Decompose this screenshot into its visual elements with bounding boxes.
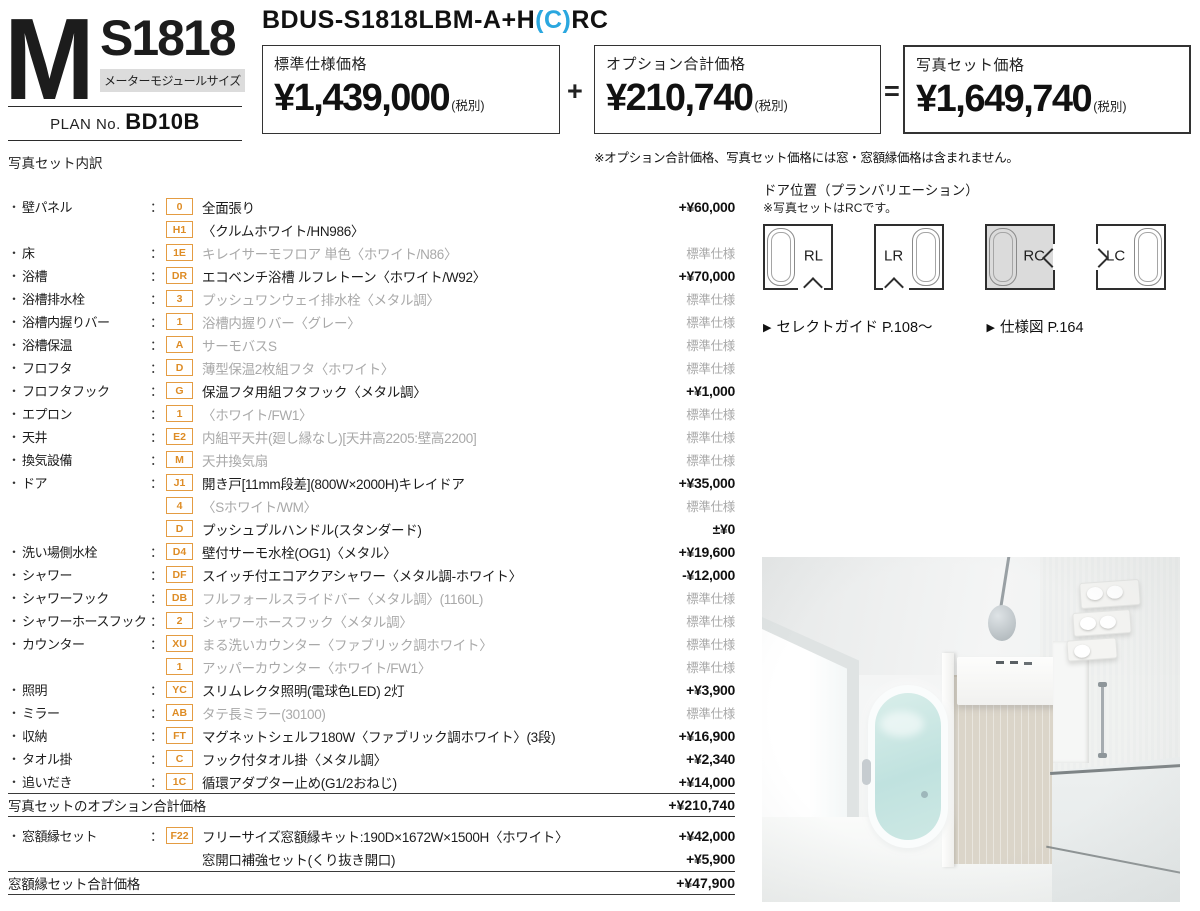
row-code-badge: 1C xyxy=(166,773,193,790)
logo-m: M xyxy=(4,6,89,114)
row-category: ドア xyxy=(22,473,150,492)
plan-number-label: PLAN No. xyxy=(50,116,121,133)
option-total-price-box: オプション合計価格 ¥210,740 (税別) xyxy=(594,45,881,134)
breakdown-row: ・フロフタフック：G保温フタ用組フタフック〈メタル調〉+¥1,000 xyxy=(8,379,735,402)
breakdown-row: ・照明：YCスリムレクタ照明(電球色LED) 2灯+¥3,900 xyxy=(8,678,735,701)
row-colon: ： xyxy=(150,826,166,845)
door-chevron-icon xyxy=(884,277,904,297)
row-bullet: ・ xyxy=(8,290,22,307)
price-amount-row: ¥1,439,000 (税別) xyxy=(274,77,548,120)
row-price: +¥70,000 xyxy=(635,268,735,284)
row-bullet: ・ xyxy=(8,566,22,583)
row-description: アッパーカウンター〈ホワイト/FW1〉 xyxy=(202,657,635,677)
row-price: +¥1,000 xyxy=(635,383,735,399)
plan-tub-inner xyxy=(771,232,791,282)
breakdown-row: ・換気設備：M天井換気扇標準仕様 xyxy=(8,448,735,471)
window-total-row: 窓額縁セット合計価格 +¥47,900 xyxy=(8,871,735,895)
row-code-badge: M xyxy=(166,451,193,468)
row-price: 標準仕様 xyxy=(635,611,735,630)
row-price: 標準仕様 xyxy=(635,450,735,469)
breakdown-row: ・タオル掛：Cフック付タオル掛〈メタル調〉+¥2,340 xyxy=(8,747,735,770)
row-price: +¥35,000 xyxy=(635,475,735,491)
breakdown-row: ・エプロン：1〈ホワイト/FW1〉標準仕様 xyxy=(8,402,735,425)
row-colon: ： xyxy=(150,749,166,768)
plan-tub-icon xyxy=(912,228,940,286)
row-code-badge xyxy=(166,850,193,867)
row-price: 標準仕様 xyxy=(635,243,735,262)
price-box-label: 標準仕様価格 xyxy=(274,53,548,74)
product-code: BDUS-S1818LBM-A+H(C)RC xyxy=(262,6,608,35)
row-colon: ： xyxy=(150,381,166,400)
breakdown-row: ・浴槽：DRエコベンチ浴槽 ルフレトーン〈ホワイト/W92〉+¥70,000 xyxy=(8,264,735,287)
row-category: 照明 xyxy=(22,680,150,699)
spec-drawing-text: 仕様図 P.164 xyxy=(1000,320,1084,336)
breakdown-row: ・シャワー：DFスイッチ付エコアクアシャワー〈メタル調-ホワイト〉-¥12,00… xyxy=(8,563,735,586)
door-plan-lr: LR xyxy=(874,224,944,290)
row-description: 循環アダプター止め(G1/2おねじ) xyxy=(202,772,635,792)
options-total-price: +¥210,740 xyxy=(668,797,735,813)
breakdown-row: ・ミラー：ABタテ長ミラー(30100)標準仕様 xyxy=(8,701,735,724)
window-total-label: 窓額縁セット合計価格 xyxy=(8,873,140,893)
row-bullet: ・ xyxy=(8,750,22,767)
triangle-icon: ▶ xyxy=(763,322,771,334)
plan-tub-icon xyxy=(1134,228,1162,286)
row-bullet: ・ xyxy=(8,543,22,560)
row-colon: ： xyxy=(150,197,166,216)
row-description: プッシュワンウェイ排水栓〈メタル調〉 xyxy=(202,289,635,309)
row-price: +¥42,000 xyxy=(635,828,735,844)
row-price: 標準仕様 xyxy=(635,289,735,308)
breakdown-row: ・浴槽内握りバー：1浴槽内握りバー〈グレー〉標準仕様 xyxy=(8,310,735,333)
plan-tub-icon xyxy=(989,228,1017,286)
row-code-badge: 0 xyxy=(166,198,193,215)
plan-label: RL xyxy=(804,248,823,265)
window-frame-rows: ・窓額縁セット：F22フリーサイズ窓額縁キット:190D×1672W×1500H… xyxy=(8,824,735,870)
row-colon: ： xyxy=(150,611,166,630)
price-amount: ¥1,649,740 xyxy=(916,78,1091,121)
row-bullet: ・ xyxy=(8,198,22,215)
breakdown-title: 写真セット内訳 xyxy=(8,152,103,172)
breakdown-row: ・壁パネル：0全面張り+¥60,000 xyxy=(8,195,735,218)
row-bullet: ・ xyxy=(8,359,22,376)
row-colon: ： xyxy=(150,680,166,699)
row-description: プッシュプルハンドル(スタンダード) xyxy=(202,519,635,539)
price-tax-note: (税別) xyxy=(451,95,484,114)
logo-block: S1818 メーターモジュールサイズ xyxy=(100,12,246,92)
door-plan-rc: RC xyxy=(985,224,1055,290)
row-code-badge: G xyxy=(166,382,193,399)
row-category: シャワーフック xyxy=(22,588,150,607)
row-bullet: ・ xyxy=(8,773,22,790)
row-code-badge: D xyxy=(166,520,193,537)
photo-vignette xyxy=(762,557,1180,902)
breakdown-row: ・追いだき：1C循環アダプター止め(G1/2おねじ)+¥14,000 xyxy=(8,770,735,793)
row-bullet: ・ xyxy=(8,635,22,652)
row-category: 収納 xyxy=(22,726,150,745)
row-code-badge: 1 xyxy=(166,313,193,330)
row-code-badge: D xyxy=(166,359,193,376)
row-colon: ： xyxy=(150,772,166,791)
row-price: +¥14,000 xyxy=(635,774,735,790)
row-bullet: ・ xyxy=(8,474,22,491)
row-description: 天井換気扇 xyxy=(202,450,635,470)
row-colon: ： xyxy=(150,726,166,745)
row-colon: ： xyxy=(150,473,166,492)
bathroom-photo xyxy=(762,557,1180,902)
row-price: +¥5,900 xyxy=(635,851,735,867)
door-plan-rl: RL xyxy=(763,224,833,290)
row-colon: ： xyxy=(150,565,166,584)
logo-size-badge: メーターモジュールサイズ xyxy=(100,69,245,92)
options-total-label: 写真セットのオプション合計価格 xyxy=(8,795,206,815)
row-description: 保温フタ用組フタフック〈メタル調〉 xyxy=(202,381,635,401)
breakdown-row: ・天井：E2内組平天井(廻し縁なし)[天井高2205:壁高2200]標準仕様 xyxy=(8,425,735,448)
row-bullet: ・ xyxy=(8,428,22,445)
row-code-badge: 1 xyxy=(166,658,193,675)
row-price: 標準仕様 xyxy=(635,588,735,607)
row-price: +¥16,900 xyxy=(635,728,735,744)
door-chevron-icon xyxy=(803,277,823,297)
row-code-badge: DR xyxy=(166,267,193,284)
row-colon: ： xyxy=(150,266,166,285)
triangle-icon: ▶ xyxy=(987,322,995,334)
row-colon: ： xyxy=(150,312,166,331)
breakdown-row: ・床：1Eキレイサーモフロア 単色〈ホワイト/N86〉標準仕様 xyxy=(8,241,735,264)
plan-tub-icon xyxy=(767,228,795,286)
price-exclusion-note: ※オプション合計価格、写真セット価格には窓・窓額縁価格は含まれません。 xyxy=(594,147,1019,166)
row-colon: ： xyxy=(150,404,166,423)
row-bullet: ・ xyxy=(8,405,22,422)
row-description: 〈クルムホワイト/HN986〉 xyxy=(202,220,635,240)
plan-tub-inner xyxy=(1138,232,1158,282)
row-category: 換気設備 xyxy=(22,450,150,469)
plan-label: RC xyxy=(1023,248,1045,265)
row-bullet: ・ xyxy=(8,244,22,261)
row-category: ミラー xyxy=(22,703,150,722)
row-price: 標準仕様 xyxy=(635,358,735,377)
catalog-page: M S1818 メーターモジュールサイズ PLAN No. BD10B 写真セッ… xyxy=(0,0,1200,911)
divider xyxy=(8,106,242,107)
row-price: +¥19,600 xyxy=(635,544,735,560)
door-plan-diagrams: RLLRRCLC xyxy=(763,224,1166,290)
row-code-badge: YC xyxy=(166,681,193,698)
price-amount: ¥210,740 xyxy=(606,77,753,120)
row-colon: ： xyxy=(150,588,166,607)
row-code-badge: J1 xyxy=(166,474,193,491)
row-price: 標準仕様 xyxy=(635,335,735,354)
row-description: 開き戸[11mm段差](800W×2000H)キレイドア xyxy=(202,473,635,493)
row-category: 浴槽内握りバー xyxy=(22,312,150,331)
breakdown-row: ・ドア：J1開き戸[11mm段差](800W×2000H)キレイドア+¥35,0… xyxy=(8,471,735,494)
price-tax-note: (税別) xyxy=(755,95,788,114)
row-code-badge: DF xyxy=(166,566,193,583)
door-plan-lc: LC xyxy=(1096,224,1166,290)
row-description: フック付タオル掛〈メタル調〉 xyxy=(202,749,635,769)
divider xyxy=(8,140,242,141)
breakdown-row: 1アッパーカウンター〈ホワイト/FW1〉標準仕様 xyxy=(8,655,735,678)
row-price: ±¥0 xyxy=(635,521,735,537)
plan-number-value: BD10B xyxy=(125,109,200,134)
row-price: 標準仕様 xyxy=(635,312,735,331)
row-code-badge: H1 xyxy=(166,221,193,238)
row-bullet: ・ xyxy=(8,267,22,284)
row-colon: ： xyxy=(150,542,166,561)
row-code-badge: AB xyxy=(166,704,193,721)
row-code-badge: F22 xyxy=(166,827,193,844)
row-bullet: ・ xyxy=(8,382,22,399)
row-category: フロフタフック xyxy=(22,381,150,400)
row-code-badge: E2 xyxy=(166,428,193,445)
row-description: 浴槽内握りバー〈グレー〉 xyxy=(202,312,635,332)
product-code-highlight: (C) xyxy=(535,6,571,34)
product-code-post: RC xyxy=(571,6,608,34)
row-code-badge: DB xyxy=(166,589,193,606)
row-price: +¥60,000 xyxy=(635,199,735,215)
spec-drawing-link: ▶仕様図 P.164 xyxy=(987,316,1084,337)
breakdown-row: 4〈Sホワイト/WM〉標準仕様 xyxy=(8,494,735,517)
row-category: カウンター xyxy=(22,634,150,653)
row-colon: ： xyxy=(150,289,166,308)
breakdown-row: ・窓額縁セット：F22フリーサイズ窓額縁キット:190D×1672W×1500H… xyxy=(8,824,735,847)
reference-links: ▶セレクトガイド P.108～ ▶仕様図 P.164 xyxy=(763,316,1084,337)
row-bullet: ・ xyxy=(8,451,22,468)
breakdown-row: ・シャワーホースフック：2シャワーホースフック〈メタル調〉標準仕様 xyxy=(8,609,735,632)
row-category: シャワー xyxy=(22,565,150,584)
row-code-badge: 1 xyxy=(166,405,193,422)
price-amount-row: ¥210,740 (税別) xyxy=(606,77,869,120)
row-price: +¥2,340 xyxy=(635,751,735,767)
breakdown-row: Dプッシュプルハンドル(スタンダード)±¥0 xyxy=(8,517,735,540)
row-description: 〈ホワイト/FW1〉 xyxy=(202,404,635,424)
photo-set-price-box: 写真セット価格 ¥1,649,740 (税別) xyxy=(903,45,1191,134)
row-category: 窓額縁セット xyxy=(22,826,150,845)
row-price: -¥12,000 xyxy=(635,567,735,583)
row-description: 窓開口補強セット(くり抜き開口) xyxy=(202,849,635,869)
breakdown-row: ・シャワーフック：DBフルフォールスライドバー〈メタル調〉(1160L)標準仕様 xyxy=(8,586,735,609)
logo-model: S1818 xyxy=(100,12,246,65)
row-colon: ： xyxy=(150,427,166,446)
row-code-badge: FT xyxy=(166,727,193,744)
breakdown-row: ・浴槽保温：AサーモバスS標準仕様 xyxy=(8,333,735,356)
plus-operator: + xyxy=(567,76,583,107)
row-code-badge: XU xyxy=(166,635,193,652)
row-description: マグネットシェルフ180W〈ファブリック調ホワイト〉(3段) xyxy=(202,726,635,746)
row-price: 標準仕様 xyxy=(635,703,735,722)
standard-price-box: 標準仕様価格 ¥1,439,000 (税別) xyxy=(262,45,560,134)
row-code-badge: 2 xyxy=(166,612,193,629)
plan-tub-inner xyxy=(916,232,936,282)
row-description: キレイサーモフロア 単色〈ホワイト/N86〉 xyxy=(202,243,635,263)
row-colon: ： xyxy=(150,358,166,377)
row-colon: ： xyxy=(150,450,166,469)
row-bullet: ・ xyxy=(8,704,22,721)
breakdown-row: 窓開口補強セット(くり抜き開口)+¥5,900 xyxy=(8,847,735,870)
row-code-badge: 4 xyxy=(166,497,193,514)
breakdown-row: ・浴槽排水栓：3プッシュワンウェイ排水栓〈メタル調〉標準仕様 xyxy=(8,287,735,310)
row-category: タオル掛 xyxy=(22,749,150,768)
row-bullet: ・ xyxy=(8,681,22,698)
row-price: 標準仕様 xyxy=(635,657,735,676)
row-description: フルフォールスライドバー〈メタル調〉(1160L) xyxy=(202,588,635,608)
plan-label: LR xyxy=(884,248,903,265)
row-code-badge: 1E xyxy=(166,244,193,261)
row-code-badge: 3 xyxy=(166,290,193,307)
breakdown-row: ・フロフタ：D薄型保温2枚組フタ〈ホワイト〉標準仕様 xyxy=(8,356,735,379)
row-code-badge: D4 xyxy=(166,543,193,560)
row-description: 壁付サーモ水栓(OG1)〈メタル〉 xyxy=(202,542,635,562)
plan-tub-inner xyxy=(993,232,1013,282)
equals-operator: = xyxy=(884,76,900,107)
row-price: 標準仕様 xyxy=(635,496,735,515)
row-price: 標準仕様 xyxy=(635,427,735,446)
plan-label: LC xyxy=(1106,248,1125,265)
row-code-badge: A xyxy=(166,336,193,353)
row-colon: ： xyxy=(150,703,166,722)
row-description: スイッチ付エコアクアシャワー〈メタル調-ホワイト〉 xyxy=(202,565,635,585)
breakdown-list: ・壁パネル：0全面張り+¥60,000H1〈クルムホワイト/HN986〉・床：1… xyxy=(8,195,735,793)
door-position-title: ドア位置（プランバリエーション） xyxy=(763,179,979,199)
row-category: 追いだき xyxy=(22,772,150,791)
row-description: エコベンチ浴槽 ルフレトーン〈ホワイト/W92〉 xyxy=(202,266,635,286)
row-code-badge: C xyxy=(166,750,193,767)
row-bullet: ・ xyxy=(8,727,22,744)
price-amount: ¥1,439,000 xyxy=(274,77,449,120)
row-category: 浴槽 xyxy=(22,266,150,285)
row-description: フリーサイズ窓額縁キット:190D×1672W×1500H〈ホワイト〉 xyxy=(202,826,635,846)
row-description: 全面張り xyxy=(202,197,635,217)
select-guide-link: ▶セレクトガイド P.108～ xyxy=(763,316,933,337)
breakdown-row: ・収納：FTマグネットシェルフ180W〈ファブリック調ホワイト〉(3段)+¥16… xyxy=(8,724,735,747)
row-colon: ： xyxy=(150,335,166,354)
row-colon: ： xyxy=(150,243,166,262)
price-box-label: 写真セット価格 xyxy=(916,54,1178,75)
row-category: 洗い場側水栓 xyxy=(22,542,150,561)
breakdown-row: ・洗い場側水栓：D4壁付サーモ水栓(OG1)〈メタル〉+¥19,600 xyxy=(8,540,735,563)
row-description: スリムレクタ照明(電球色LED) 2灯 xyxy=(202,680,635,700)
row-category: 床 xyxy=(22,243,150,262)
row-description: シャワーホースフック〈メタル調〉 xyxy=(202,611,635,631)
price-tax-note: (税別) xyxy=(1093,96,1126,115)
row-category: 浴槽排水栓 xyxy=(22,289,150,308)
select-guide-text: セレクトガイド P.108～ xyxy=(776,320,932,336)
row-price: 標準仕様 xyxy=(635,634,735,653)
window-total-price: +¥47,900 xyxy=(676,875,735,891)
row-description: タテ長ミラー(30100) xyxy=(202,703,635,723)
breakdown-row: H1〈クルムホワイト/HN986〉 xyxy=(8,218,735,241)
row-price: 標準仕様 xyxy=(635,404,735,423)
product-code-pre: BDUS-S1818LBM-A+H xyxy=(262,6,535,34)
row-bullet: ・ xyxy=(8,589,22,606)
row-category: エプロン xyxy=(22,404,150,423)
row-price: +¥3,900 xyxy=(635,682,735,698)
row-bullet: ・ xyxy=(8,827,22,844)
row-description: 内組平天井(廻し縁なし)[天井高2205:壁高2200] xyxy=(202,427,635,447)
row-description: 〈Sホワイト/WM〉 xyxy=(202,496,635,516)
row-category: 浴槽保温 xyxy=(22,335,150,354)
row-category: 天井 xyxy=(22,427,150,446)
plan-number-line: PLAN No. BD10B xyxy=(8,109,242,135)
price-amount-row: ¥1,649,740 (税別) xyxy=(916,78,1178,121)
row-category: フロフタ xyxy=(22,358,150,377)
row-bullet: ・ xyxy=(8,336,22,353)
row-category: シャワーホースフック xyxy=(22,611,150,630)
price-box-label: オプション合計価格 xyxy=(606,53,869,74)
breakdown-row: ・カウンター：XUまる洗いカウンター〈ファブリック調ホワイト〉標準仕様 xyxy=(8,632,735,655)
door-position-note: ※写真セットはRCです。 xyxy=(763,199,897,216)
row-category: 壁パネル xyxy=(22,197,150,216)
row-bullet: ・ xyxy=(8,612,22,629)
row-colon: ： xyxy=(150,634,166,653)
row-description: サーモバスS xyxy=(202,335,635,355)
row-description: まる洗いカウンター〈ファブリック調ホワイト〉 xyxy=(202,634,635,654)
row-bullet: ・ xyxy=(8,313,22,330)
options-total-row: 写真セットのオプション合計価格 +¥210,740 xyxy=(8,793,735,817)
row-description: 薄型保温2枚組フタ〈ホワイト〉 xyxy=(202,358,635,378)
